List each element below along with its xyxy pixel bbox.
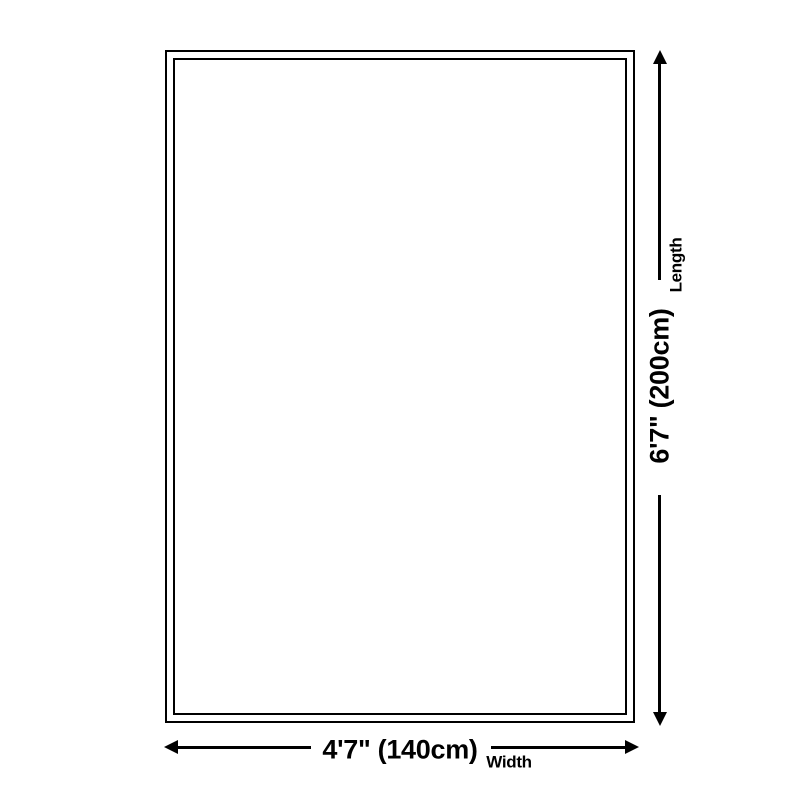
arrowhead-left-icon [164, 740, 178, 754]
arrowhead-down-icon [653, 712, 667, 726]
width-line-right-segment [491, 746, 625, 749]
product-outline-inner [173, 58, 627, 715]
length-line-lower-segment [658, 495, 661, 712]
arrowhead-right-icon [625, 740, 639, 754]
length-value: 6'7" (200cm) [647, 308, 674, 463]
width-label: Width [486, 754, 532, 771]
width-line-left-segment [177, 746, 311, 749]
length-line-upper-segment [658, 62, 661, 280]
length-label: Length [668, 238, 685, 293]
dimension-diagram: Length 6'7" (200cm) 4'7" (140cm) Width [0, 0, 800, 800]
width-value: 4'7" (140cm) [322, 737, 477, 764]
